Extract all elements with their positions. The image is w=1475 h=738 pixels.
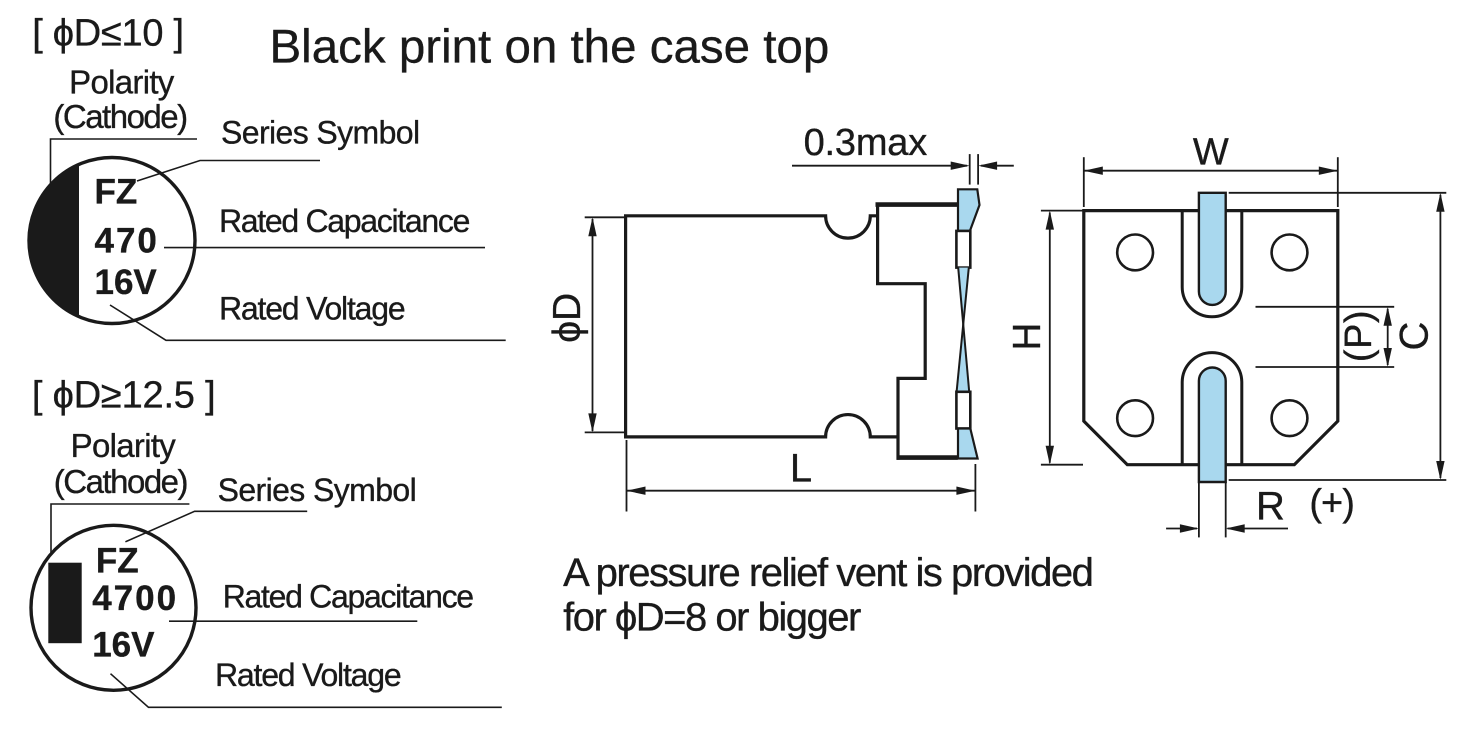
svg-text:16V: 16V [92,626,155,665]
svg-text:Rated Voltage: Rated Voltage [219,291,405,327]
svg-text:R: R [1256,485,1285,529]
svg-text:Series Symbol: Series Symbol [218,472,417,508]
svg-text:Rated Capacitance: Rated Capacitance [223,579,474,615]
svg-text:Polarity: Polarity [69,64,175,101]
svg-text:(Cathode): (Cathode) [54,463,187,500]
svg-text:[ ϕD≥12.5 ]: [ ϕD≥12.5 ] [32,375,216,417]
svg-text:L: L [790,447,812,491]
svg-text:Black print on the case top: Black print on the case top [270,21,830,74]
svg-text:Series Symbol: Series Symbol [221,115,420,151]
svg-text:0.3max: 0.3max [804,122,928,164]
svg-text:470: 470 [95,221,159,260]
svg-text:(+): (+) [1309,483,1354,525]
svg-text:FZ: FZ [96,541,139,580]
svg-text:W: W [1193,132,1229,174]
svg-text:(Cathode): (Cathode) [53,98,186,135]
svg-text:Polarity: Polarity [71,427,177,464]
svg-text:16V: 16V [95,263,158,302]
svg-text:Rated Capacitance: Rated Capacitance [219,203,470,239]
svg-text:A pressure relief vent is prov: A pressure relief vent is provided [563,551,1092,595]
svg-text:[ ϕD≤10 ]: [ ϕD≤10 ] [32,12,184,54]
svg-text:C: C [1393,322,1437,351]
svg-text:4700: 4700 [92,579,178,618]
svg-text:ϕD: ϕD [546,293,589,343]
svg-text:(P): (P) [1338,310,1380,362]
svg-text:for ϕD=8 or bigger: for ϕD=8 or bigger [563,595,861,639]
svg-text:H: H [1006,323,1049,351]
svg-text:FZ: FZ [95,173,138,212]
svg-text:Rated Voltage: Rated Voltage [215,657,401,693]
